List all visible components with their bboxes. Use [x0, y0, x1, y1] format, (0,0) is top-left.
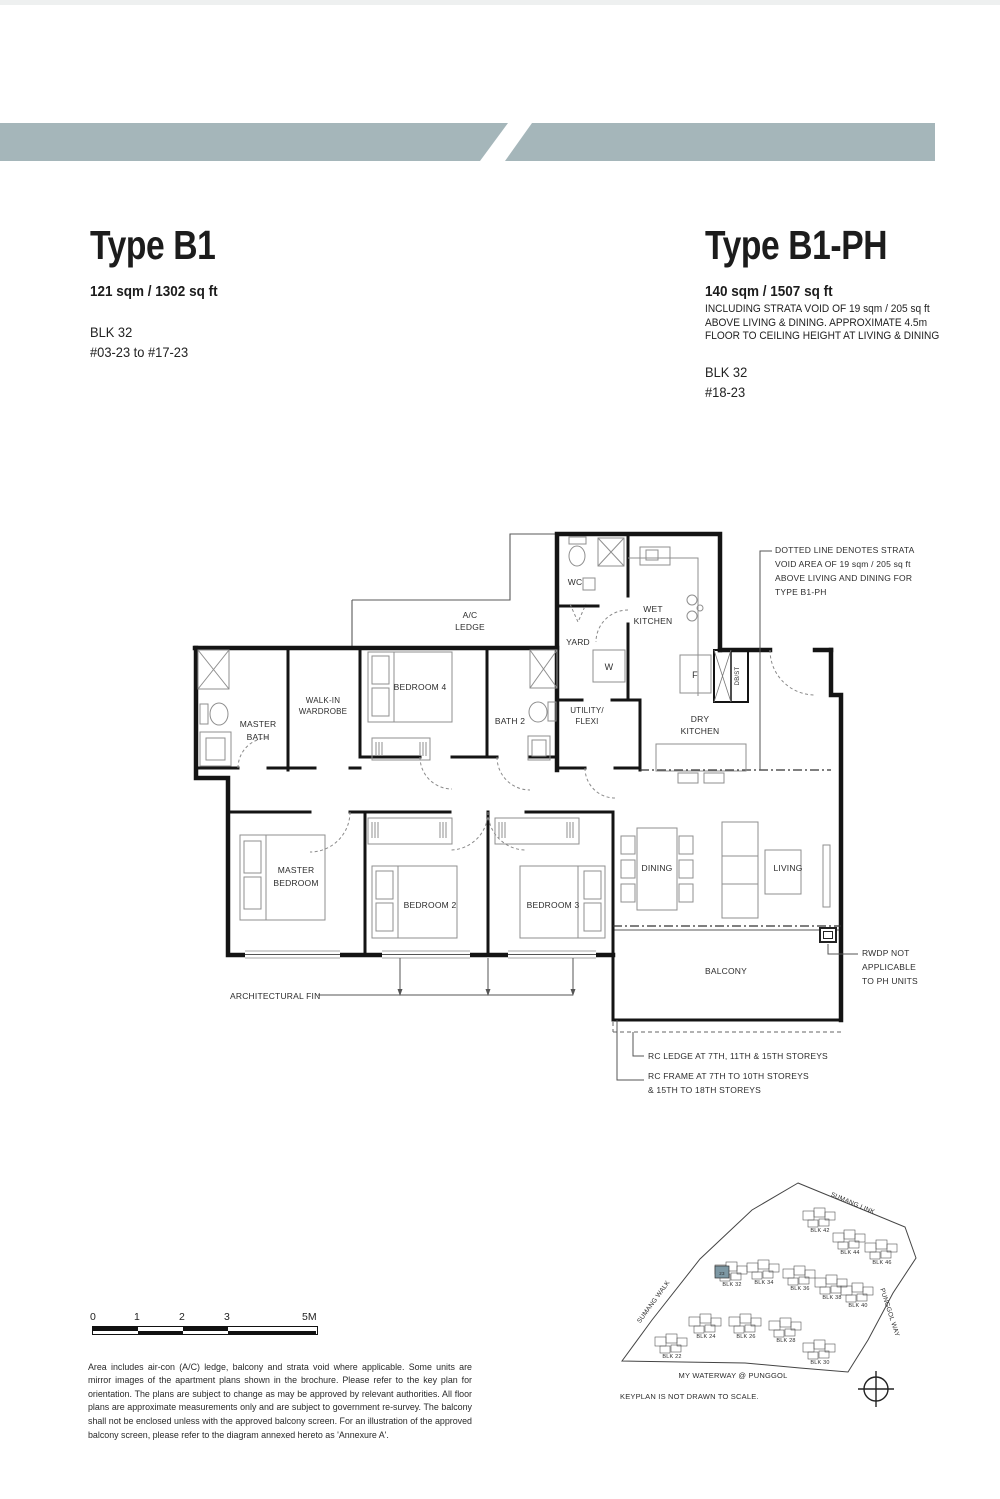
unit-b1-area: 121 sqm / 1302 sq ft: [90, 283, 228, 300]
block-cluster: [758, 1260, 769, 1269]
strata-void-line: [613, 770, 841, 926]
scale-label: 0: [90, 1311, 96, 1323]
disclaimer-text: Area includes air-con (A/C) ledge, balco…: [88, 1361, 472, 1442]
block-label: BLK 26: [736, 1334, 755, 1340]
block-cluster: [769, 1321, 780, 1330]
block-label: BLK 36: [790, 1286, 809, 1292]
block-cluster: [700, 1314, 711, 1323]
balcony-screen-line: [613, 1022, 841, 1032]
floorplan-label: RC LEDGE AT 7TH, 11TH & 15TH STOREYS: [648, 1051, 828, 1061]
block-cluster: [689, 1317, 700, 1326]
block-cluster: [803, 1211, 814, 1220]
floorplan-label: APPLICABLE: [862, 962, 916, 972]
banner-left-label: 4-BEDROOM PREMIUM: [10, 0, 371, 38]
rwdp-box: [820, 928, 836, 942]
block-cluster: [740, 1314, 751, 1323]
unit-b1ph-note: ABOVE LIVING & DINING. APPROXIMATE 4.5m: [705, 317, 939, 331]
block-cluster: [774, 1330, 784, 1337]
floorplan-label: WC: [568, 577, 583, 587]
unit-type-b1: Type B1 121 sqm / 1302 sq ft BLK 32 #03-…: [90, 222, 243, 362]
dbst-closet: [714, 650, 748, 702]
block-cluster: [815, 1278, 826, 1287]
unit-type-b1ph: Type B1-PH 140 sqm / 1507 sq ft INCLUDIN…: [705, 222, 954, 402]
unit-b1-block: BLK 32: [90, 322, 231, 342]
floorplan-label: KITCHEN: [681, 726, 720, 736]
compass-icon: [858, 1371, 894, 1407]
block-cluster: [852, 1283, 863, 1292]
block-cluster: [808, 1220, 818, 1227]
road-label: SUMANG LINK: [830, 1191, 876, 1216]
block-label: BLK 38: [822, 1295, 841, 1301]
block-cluster: [833, 1233, 844, 1242]
block-cluster: [838, 1242, 848, 1249]
floorplan-label: FLEXI: [575, 717, 598, 726]
floorplan-label: TO PH UNITS: [862, 976, 918, 986]
unit-b1-floors: #03-23 to #17-23: [90, 342, 231, 362]
brochure-page: 4-BEDROOM PREMIUM 4-BEDROOM PREMIUM PENT…: [0, 0, 1000, 1499]
block-cluster: [666, 1334, 677, 1343]
block-label: BLK 22: [662, 1354, 681, 1360]
scale-bar: 0 1 2 3 5M: [90, 1311, 330, 1341]
floorplan-label: W: [605, 662, 614, 672]
block-label: BLK 32: [722, 1282, 741, 1288]
banner-left: [0, 123, 508, 161]
project-name-label: MY WATERWAY @ PUNGGOL: [679, 1371, 788, 1380]
block-cluster: [788, 1278, 798, 1285]
floorplan-label: DOTTED LINE DENOTES STRATA: [775, 545, 915, 555]
floorplan-label: WALK-IN: [306, 696, 340, 705]
floorplan-label: BATH: [247, 732, 270, 742]
block-label: BLK 30: [810, 1360, 829, 1366]
windows: [245, 951, 596, 958]
block-cluster: [865, 1243, 876, 1252]
door-swings: [238, 604, 815, 852]
floorplan-label: VOID AREA OF 19 sqm / 205 sq ft: [775, 559, 911, 569]
floorplan-label: DINING: [642, 863, 673, 873]
floorplan-label: YARD: [566, 637, 590, 647]
floorplan-label: BEDROOM 4: [394, 682, 447, 692]
block-cluster: [794, 1266, 805, 1275]
block-label: BLK 34: [754, 1280, 773, 1286]
scale-label: 5M: [302, 1311, 317, 1323]
block-cluster: [844, 1230, 855, 1239]
block-cluster: [780, 1318, 791, 1327]
block-cluster: [814, 1208, 825, 1217]
unit-b1ph-area: 140 sqm / 1507 sq ft: [705, 283, 929, 300]
block-cluster: [783, 1269, 794, 1278]
unit-b1ph-block: BLK 32: [705, 362, 934, 382]
floorplan-label: & 15TH TO 18TH STOREYS: [648, 1085, 761, 1095]
floorplan-label: BALCONY: [705, 966, 747, 976]
floorplan-label: WARDROBE: [299, 707, 347, 716]
scale-label: 1: [134, 1311, 140, 1323]
interior-walls: [196, 534, 640, 955]
block-cluster: [808, 1352, 818, 1359]
floorplan-label: RWDP NOT: [862, 948, 910, 958]
block-cluster: [694, 1326, 704, 1333]
floorplan-label: A/C: [463, 610, 478, 620]
block-cluster: [846, 1295, 856, 1302]
annotation-leaders: [318, 551, 858, 1080]
floorplan-label: LIVING: [773, 863, 802, 873]
floorplan-labels: A/CLEDGEWCWETKITCHENYARDWFDB/STMASTERBAT…: [230, 545, 918, 1095]
floorplan-label: F: [692, 670, 698, 680]
floorplan-label: UTILITY/: [570, 706, 604, 715]
block-cluster: [820, 1287, 830, 1294]
block-label: BLK 28: [776, 1338, 795, 1344]
floorplan-drawing: A/CLEDGEWCWETKITCHENYARDWFDB/STMASTERBAT…: [80, 520, 1000, 1120]
floorplan-label: RC FRAME AT 7TH TO 10TH STOREYS: [648, 1071, 809, 1081]
block-cluster: [876, 1240, 887, 1249]
floorplan-label: DB/ST: [735, 667, 741, 686]
block-cluster: [660, 1346, 670, 1353]
block-cluster: [841, 1286, 852, 1295]
block-cluster: [826, 1275, 837, 1284]
banner-right-label: 4-BEDROOM PREMIUM PENTHOUSE: [517, 0, 983, 38]
floorplan-label: ARCHITECTURAL FIN: [230, 991, 320, 1001]
block-cluster: [803, 1343, 814, 1352]
unit-b1ph-note: FLOOR TO CEILING HEIGHT AT LIVING & DINI…: [705, 330, 939, 344]
block-label: BLK 40: [848, 1303, 867, 1309]
floorplan-label: MASTER: [278, 865, 315, 875]
block-label: BLK 44: [840, 1250, 859, 1256]
floorplan-label: LEDGE: [455, 622, 485, 632]
block-cluster: [729, 1317, 740, 1326]
scale-label: 3: [224, 1311, 230, 1323]
floorplan-label: KITCHEN: [634, 616, 673, 626]
floorplan-label: BEDROOM 3: [527, 900, 580, 910]
unit-b1-title: Type B1: [90, 222, 215, 269]
floorplan-label: BATH 2: [495, 716, 525, 726]
scale-label: 2: [179, 1311, 185, 1323]
block-cluster: [752, 1272, 762, 1279]
unit-b1ph-floors: #18-23: [705, 382, 934, 402]
floorplan-label: TYPE B1-PH: [775, 587, 827, 597]
block-cluster: [814, 1340, 825, 1349]
keyplan: SUMANG LINKSUMANG WALKPUNGGOL WAYMY WATE…: [600, 1160, 1000, 1410]
keyplan-labels: SUMANG LINKSUMANG WALKPUNGGOL WAYMY WATE…: [620, 1191, 901, 1401]
block-label: BLK 46: [872, 1260, 891, 1266]
road-label: PUNGGOL WAY: [878, 1288, 900, 1338]
unit-b1ph-note: INCLUDING STRATA VOID OF 19 sqm / 205 sq…: [705, 303, 939, 317]
block-cluster: [655, 1337, 666, 1346]
highlighted-unit-number: 23: [719, 1271, 725, 1276]
floorplan-label: WET: [643, 604, 662, 614]
floorplan-label: MASTER: [240, 719, 277, 729]
banner-right: [505, 123, 935, 161]
floorplan-label: BEDROOM 2: [404, 900, 457, 910]
keyplan-blocks: [655, 1208, 897, 1359]
block-label: BLK 42: [810, 1228, 829, 1234]
floorplan-label: ABOVE LIVING AND DINING FOR: [775, 573, 912, 583]
block-label: BLK 24: [696, 1334, 715, 1340]
block-cluster: [870, 1252, 880, 1259]
floorplan-label: DRY: [691, 714, 710, 724]
unit-b1ph-title: Type B1-PH: [705, 222, 909, 269]
block-cluster: [747, 1263, 758, 1272]
balcony-walls: [613, 955, 841, 1020]
keyplan-note: KEYPLAN IS NOT DRAWN TO SCALE.: [620, 1392, 759, 1401]
block-cluster: [734, 1326, 744, 1333]
exterior-walls: [195, 534, 841, 1020]
floorplan-label: BEDROOM: [273, 878, 318, 888]
scale-bar-graphic: [92, 1326, 318, 1335]
